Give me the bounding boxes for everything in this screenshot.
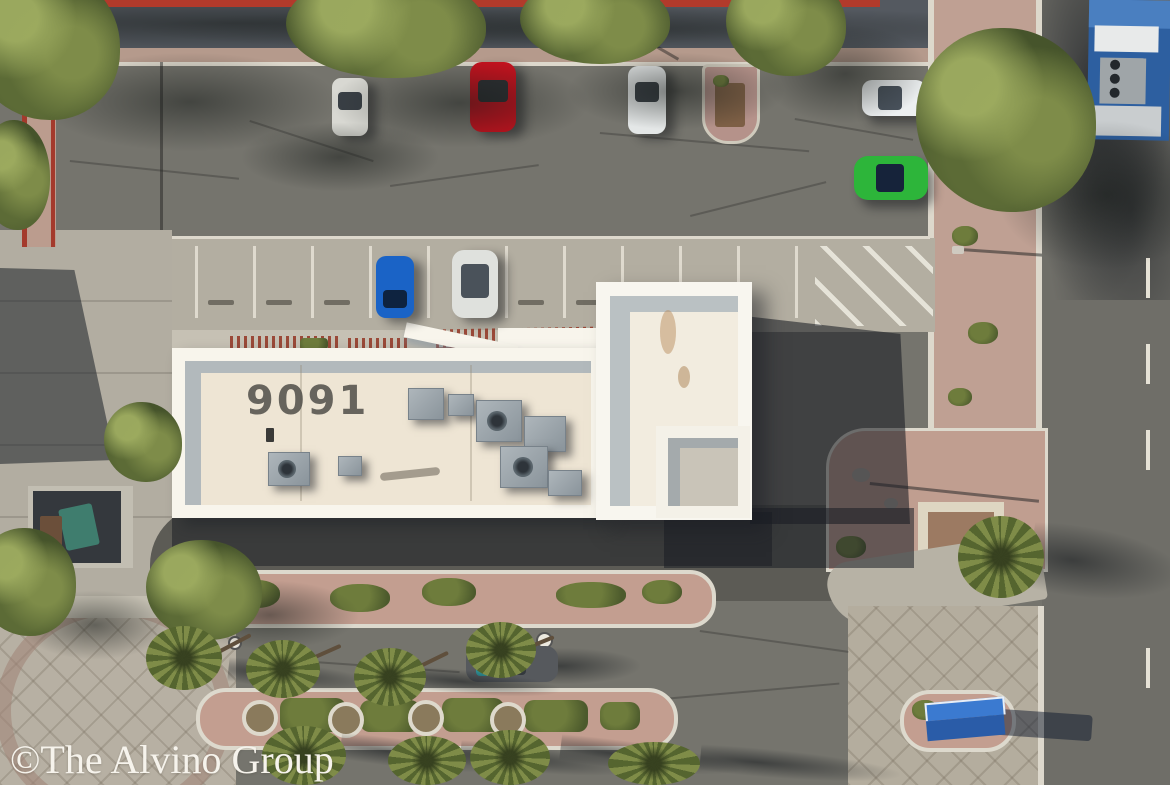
white-suv-center-row xyxy=(452,250,498,318)
truck-cab-band xyxy=(1094,25,1158,52)
asphalt-crack xyxy=(600,132,809,152)
roof-number: 9091 xyxy=(246,378,369,424)
palm-canopy xyxy=(146,626,222,690)
palm-canopy xyxy=(958,516,1044,598)
palm-canopy xyxy=(608,742,700,785)
asphalt-crack xyxy=(70,160,239,180)
roof-seam xyxy=(470,365,472,501)
wheel-stop xyxy=(518,300,544,305)
aerial-photo: 9091 xyxy=(0,0,1170,785)
hvac-fan xyxy=(513,457,533,477)
truck-roof-light xyxy=(1089,0,1170,29)
crosswalk-curb xyxy=(1038,606,1044,785)
tree-shadow xyxy=(240,122,440,192)
palm-canopy xyxy=(388,736,466,785)
median-shrub xyxy=(600,702,640,730)
palm-canopy xyxy=(354,648,426,706)
truck-panel xyxy=(1099,57,1146,104)
stall-line xyxy=(369,246,372,318)
blue-car-center-row xyxy=(376,256,414,318)
palm-canopy xyxy=(470,730,550,785)
palm-planter-ring xyxy=(242,700,278,736)
tree-canopy xyxy=(104,402,182,482)
green-car-east-lane xyxy=(854,156,928,200)
asphalt-crack xyxy=(700,630,849,653)
stall-line xyxy=(563,246,566,318)
stall-line xyxy=(253,246,256,318)
stall-line xyxy=(195,246,198,318)
truck-stack xyxy=(1110,74,1120,84)
hvac-unit xyxy=(408,388,444,420)
roof-mark xyxy=(266,428,274,442)
watermark: ©The Alvino Group xyxy=(10,736,334,783)
windshield xyxy=(383,290,407,308)
hvac-fan xyxy=(487,411,507,431)
monument-sign xyxy=(924,697,1003,743)
stall-line xyxy=(795,246,798,318)
sunroof xyxy=(461,264,489,298)
strip-shrub xyxy=(642,580,682,604)
shrub xyxy=(968,322,998,344)
roof-glass xyxy=(876,164,904,192)
shrub xyxy=(952,226,978,246)
light-pole xyxy=(952,246,964,254)
hvac-unit xyxy=(268,452,310,486)
wheel-stop xyxy=(324,300,350,305)
hatched-no-park-zone xyxy=(815,246,933,326)
asphalt-crack xyxy=(690,181,826,217)
roof-stain xyxy=(660,310,676,354)
hvac-unit xyxy=(476,400,522,442)
lane-dash xyxy=(1146,344,1150,384)
hvac-unit xyxy=(548,470,582,496)
median-shrub xyxy=(524,700,588,732)
palm-planter-ring xyxy=(408,700,444,736)
strip-shrub xyxy=(422,578,476,606)
lane-dash xyxy=(1146,648,1150,688)
palm-canopy xyxy=(246,640,320,698)
palm-canopy xyxy=(466,622,536,678)
hvac-unit xyxy=(500,446,548,488)
hvac-fan xyxy=(278,460,296,478)
stall-line xyxy=(505,246,508,318)
building-shadow-east xyxy=(750,308,910,524)
wheel-stop xyxy=(266,300,292,305)
stall-line xyxy=(311,246,314,318)
stall-line xyxy=(427,246,430,318)
shrub xyxy=(948,388,972,406)
hvac-unit xyxy=(338,456,362,476)
roof-stain xyxy=(678,366,690,388)
building-roof-annex xyxy=(656,426,750,518)
wheel-stop xyxy=(208,300,234,305)
lane-dash xyxy=(1146,430,1150,470)
strip-shrub xyxy=(556,582,626,608)
hvac-unit xyxy=(448,394,474,416)
